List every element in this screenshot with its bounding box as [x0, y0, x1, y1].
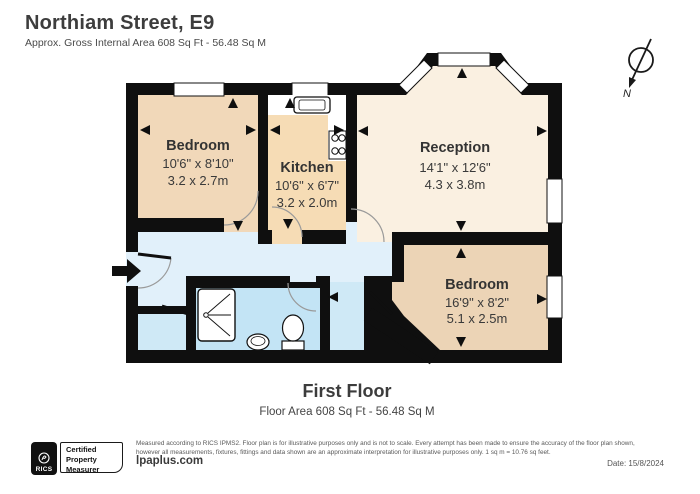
- floorplan-drawing: Bedroom 10'6" x 8'10" 3.2 x 2.7m Kitchen…: [0, 0, 700, 494]
- compass-north-label: N: [623, 88, 631, 100]
- website-link: lpaplus.com: [136, 455, 203, 467]
- reception-imperial: 14'1" x 12'6": [419, 160, 491, 175]
- reception-name: Reception: [420, 140, 490, 156]
- kitchen-name: Kitchen: [280, 160, 333, 176]
- compass-icon: N: [623, 39, 653, 100]
- bedroom-2-window: [547, 276, 562, 318]
- toilet-icon: [282, 341, 304, 350]
- bedroom-2-name: Bedroom: [445, 277, 509, 293]
- certified-measurer-badge: Certified Property Measurer: [60, 442, 123, 473]
- bedroom-1-name: Bedroom: [166, 138, 230, 154]
- disclaimer-line-2: however all measurements, fixtures, fitt…: [136, 449, 686, 458]
- bedroom-1-metric: 3.2 x 2.7m: [168, 173, 229, 188]
- inner-hall-area: [330, 282, 364, 350]
- date-label: Date: 15/8/2024: [607, 459, 664, 468]
- bedroom-1-imperial: 10'6" x 8'10": [162, 156, 234, 171]
- reception-window: [547, 179, 562, 223]
- floor-name: First Floor: [0, 381, 694, 402]
- bedroom-2-imperial: 16'9" x 8'2": [445, 295, 509, 310]
- reception-metric: 4.3 x 3.8m: [425, 177, 486, 192]
- closet-area: [138, 314, 186, 350]
- bedroom-2-metric: 5.1 x 2.5m: [447, 311, 508, 326]
- badge-line: Property: [66, 455, 122, 465]
- kitchen-metric: 3.2 x 2.0m: [277, 195, 338, 210]
- floor-area: Floor Area 608 Sq Ft - 56.48 Sq M: [0, 406, 694, 418]
- floorplan-page: Northiam Street, E9 Approx. Gross Intern…: [0, 0, 700, 494]
- disclaimer-line-1: Measured according to RICS IPMS2. Floor …: [136, 440, 686, 449]
- rics-label: RICS: [36, 466, 53, 473]
- kitchen-window: [292, 83, 328, 96]
- disclaimer: Measured according to RICS IPMS2. Floor …: [136, 440, 686, 457]
- rics-logo: RICS: [31, 442, 57, 475]
- badge-line: Certified: [66, 445, 122, 455]
- badge-line: Measurer: [66, 465, 122, 475]
- kitchen-imperial: 10'6" x 6'7": [275, 178, 339, 193]
- floor-label-block: First Floor Floor Area 608 Sq Ft - 56.48…: [0, 381, 694, 418]
- bedroom-1-window: [174, 83, 224, 96]
- bay-window-top: [438, 53, 490, 66]
- rics-crest-icon: [36, 450, 52, 466]
